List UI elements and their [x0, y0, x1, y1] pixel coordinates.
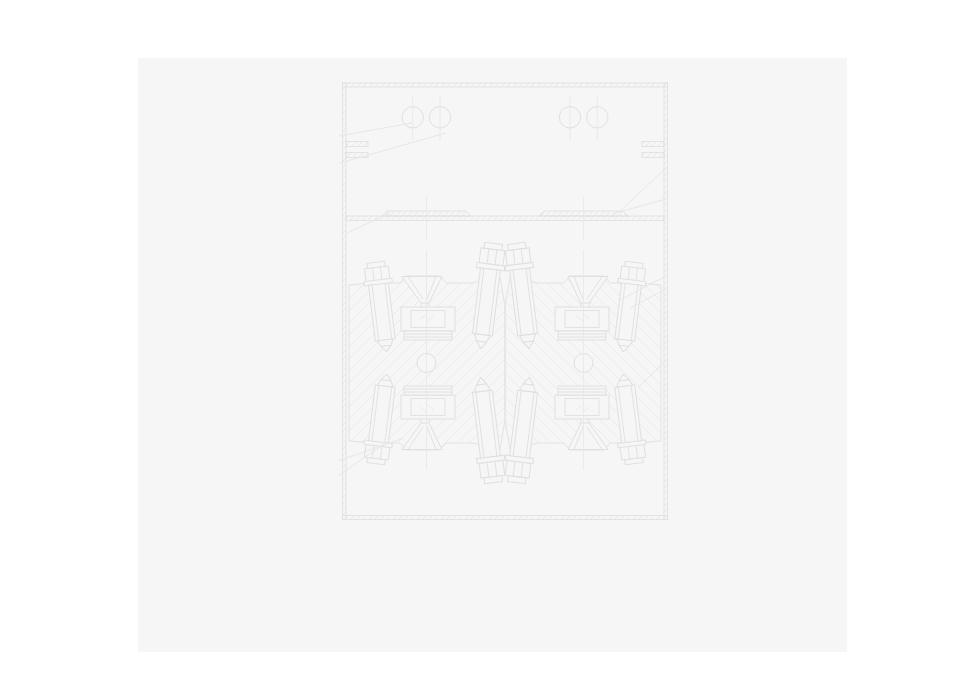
assembly-section-drawing	[0, 0, 961, 694]
right-wall-flange	[642, 142, 664, 158]
top-chamber	[402, 95, 608, 140]
drawing-canvas	[0, 0, 961, 694]
divider-plate	[346, 197, 664, 240]
left-wall-flange	[346, 142, 368, 158]
